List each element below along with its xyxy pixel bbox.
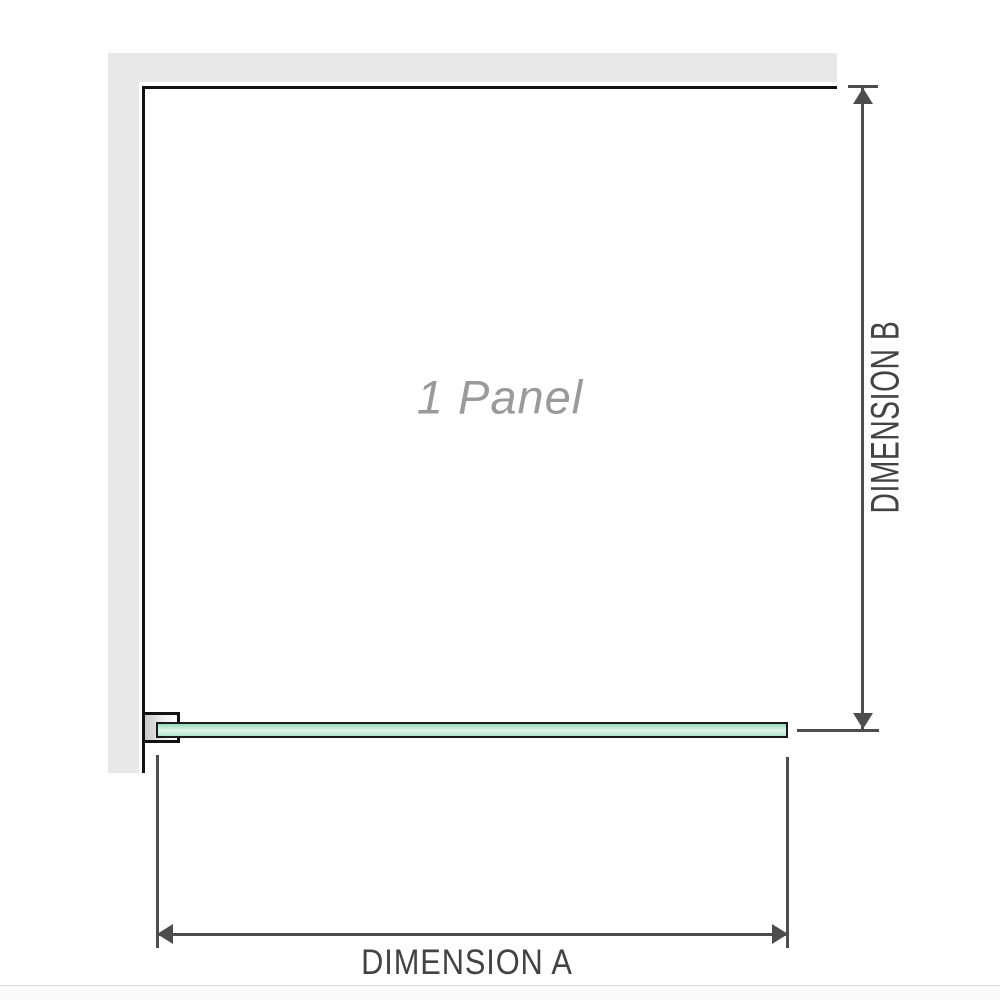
shower-screen-dimension-diagram: 1 Panel DIMENSION B DIMENSION A — [0, 0, 1000, 1000]
glass-panel — [156, 722, 788, 738]
dimension-a-right-extension — [786, 757, 789, 948]
arrow-down-icon — [853, 713, 873, 729]
arrow-left-icon — [157, 924, 173, 944]
screen-left-edge — [142, 86, 145, 773]
dimension-a-left-extension — [156, 755, 159, 948]
wall-left — [108, 53, 139, 773]
arrow-up-icon — [853, 88, 873, 104]
screen-top-edge — [142, 86, 837, 89]
dimension-a-label: DIMENSION A — [361, 943, 573, 983]
panel-count-label: 1 Panel — [417, 370, 583, 425]
dimension-a-line — [157, 933, 788, 936]
dimension-b-bottom-tick — [797, 729, 879, 732]
wall-top — [108, 53, 837, 82]
dimension-b-label: DIMENSION B — [864, 321, 909, 514]
page-bottom-edge — [0, 985, 1000, 1000]
arrow-right-icon — [772, 924, 788, 944]
